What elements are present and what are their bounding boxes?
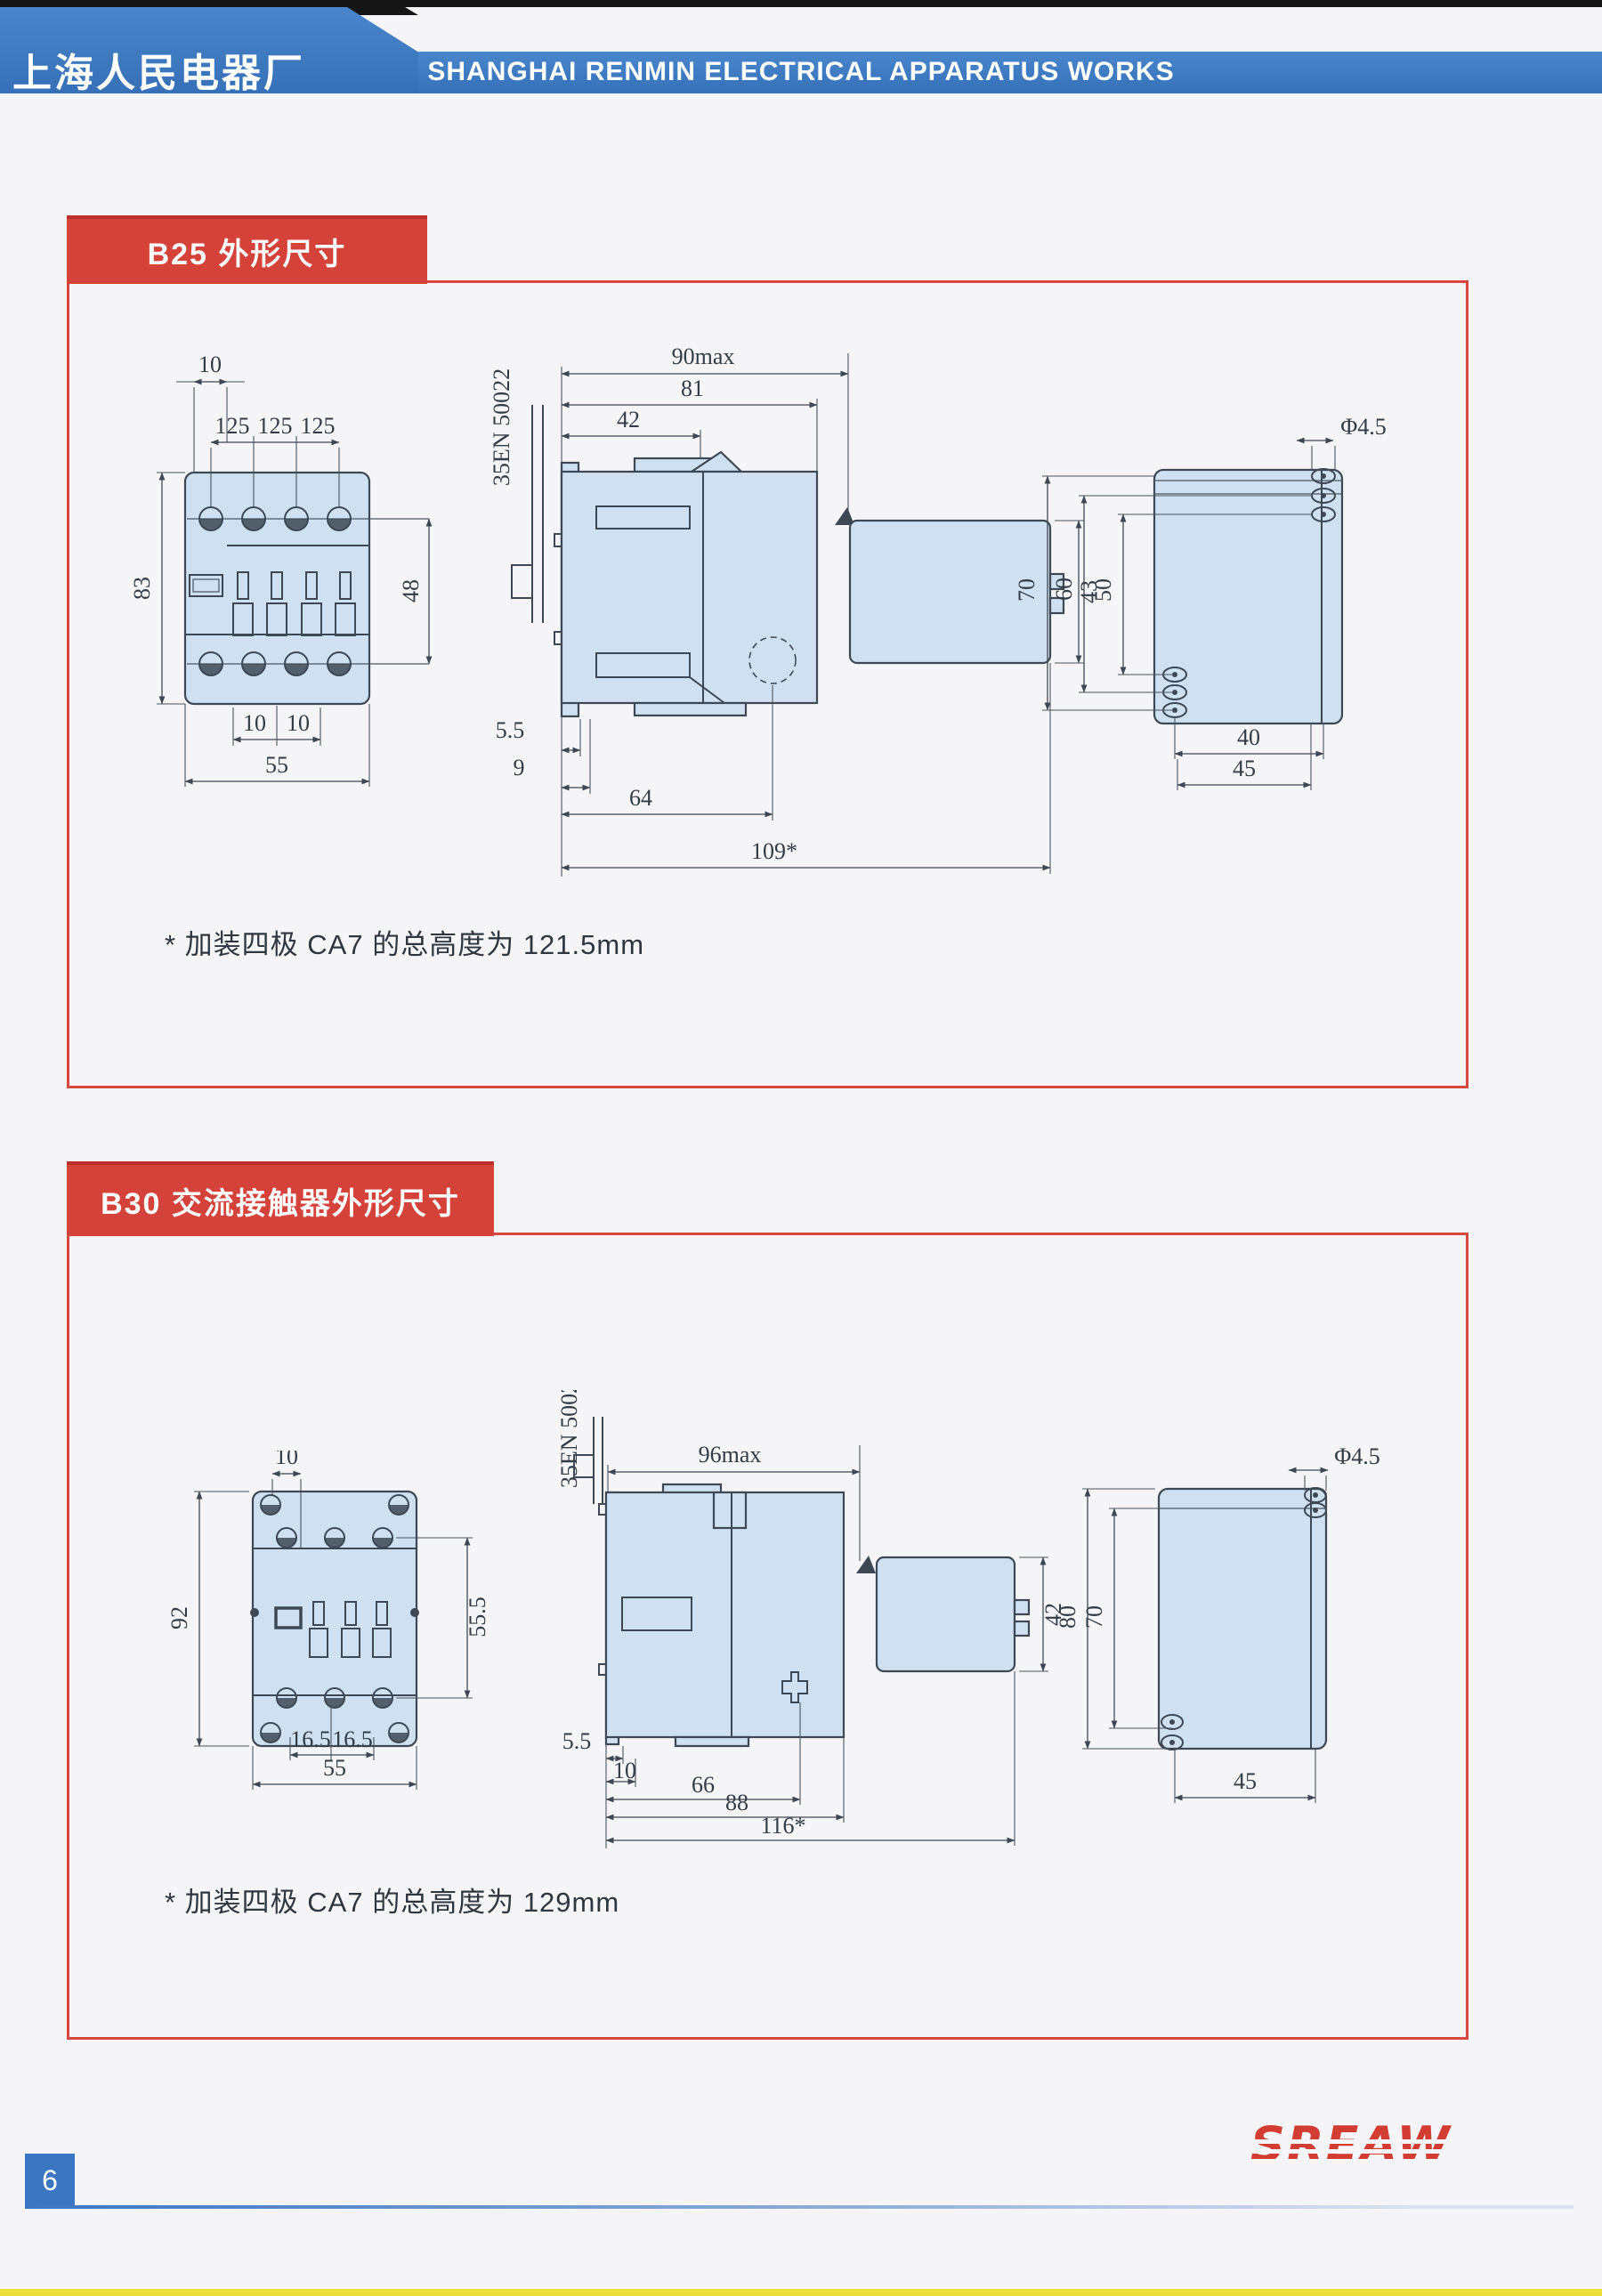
page-number: 6 [42,2164,58,2197]
catalog-page: { "header": { "factory_zh": "上海人民电器厂", "… [0,0,1602,2296]
b25-rear-dim-hole: Φ4.5 [1340,414,1387,440]
b25-section-title: B25 外形尺寸 [67,215,427,284]
b30-section-title: B30 交流接触器外形尺寸 [67,1161,494,1236]
b25-rear-dim-45: 45 [1233,756,1256,781]
b30-side-dim-10: 10 [613,1758,636,1783]
b30-aux-contact-block [877,1557,1015,1671]
b25-front-dim-b2: 10 [287,710,310,736]
b25-side-dim-109: 109* [751,838,797,864]
b25-front-dim-pitch2: 125 [258,413,293,439]
b30-front-dim-92: 92 [169,1606,192,1629]
sreaw-logo-text: SREAW [1250,2116,1452,2172]
b25-note: * 加装四极 CA7 的总高度为 121.5mm [165,922,644,962]
logo-stripe-3 [1247,2159,1464,2163]
b30-side-dim-96max: 96max [699,1442,762,1467]
b30-note: * 加装四极 CA7 的总高度为 129mm [165,1880,619,1920]
b30-rear-dim-80: 80 [1055,1605,1080,1629]
logo-stripe-1 [1247,2139,1464,2144]
b30-side-dim-116: 116* [760,1813,805,1839]
footer-rule [25,2205,1574,2209]
b25-side-din-rail-label: 35EN 50022 [489,368,514,486]
b30-rear-dim-70: 70 [1081,1605,1107,1629]
b25-rear-view-drawing: Φ4.5 70 60 50 40 45 [1015,409,1406,801]
factory-name-english: SHANGHAI RENMIN ELECTRICAL APPARATUS WOR… [0,57,1602,87]
b25-side-dim-9: 9 [514,755,525,780]
b30-side-dim-5-5: 5.5 [562,1728,592,1754]
b30-front-dim-b1: 16.5 [290,1726,331,1752]
b25-rear-dim-50: 50 [1090,578,1116,602]
b30-title-label: B30 交流接触器外形尺寸 [101,1179,460,1223]
b30-rear-dim-hole: Φ4.5 [1334,1443,1380,1469]
bottom-yellow-strip [0,2289,1602,2296]
b25-front-dim-pitch1: 125 [215,413,250,439]
b30-front-dim-10: 10 [275,1451,298,1469]
b25-front-dim-10: 10 [198,352,222,377]
b30-side-dim-66: 66 [692,1772,715,1798]
page-number-badge: 6 [25,2154,75,2207]
b25-side-dim-42: 42 [617,407,640,433]
b25-side-dim-90max: 90max [672,344,735,369]
b25-title-label: B25 外形尺寸 [148,230,347,273]
b25-side-dim-5-5: 5.5 [496,717,525,743]
b25-rear-dim-40: 40 [1237,724,1260,750]
b25-front-dim-48: 48 [398,579,424,602]
b25-side-dim-81: 81 [681,376,704,401]
b30-rear-dim-45: 45 [1234,1768,1257,1794]
logo-stripe-2 [1247,2149,1464,2154]
b30-front-dim-55: 55 [323,1755,346,1781]
b25-rear-dim-60: 60 [1051,578,1077,601]
b30-rear-view-drawing: Φ4.5 80 70 45 [1055,1442,1428,1815]
b25-front-dim-b1: 10 [243,710,266,736]
b25-side-dim-64: 64 [629,785,652,811]
b25-front-dim-pitch3: 125 [301,413,336,439]
b25-rear-dim-70: 70 [1015,578,1040,602]
b30-front-dim-55-5: 55.5 [465,1597,490,1637]
b30-side-dim-88: 88 [725,1790,748,1815]
b25-front-dim-83: 83 [133,577,155,600]
b30-front-view-drawing: 10 92 55.5 16.5 16.5 55 [169,1451,507,1798]
sreaw-logo: SREAW [1250,2116,1452,2172]
b25-front-view-drawing: 10 125 125 125 83 48 10 10 55 [133,352,445,796]
b25-front-dim-55: 55 [265,752,288,778]
b30-front-dim-b2: 16.5 [332,1726,373,1752]
b30-side-din-rail-label: 35EN 50022 [556,1390,582,1488]
b30-side-view-drawing: 35EN 50022 96max 42 5.5 10 66 88 116* [545,1390,1079,1857]
